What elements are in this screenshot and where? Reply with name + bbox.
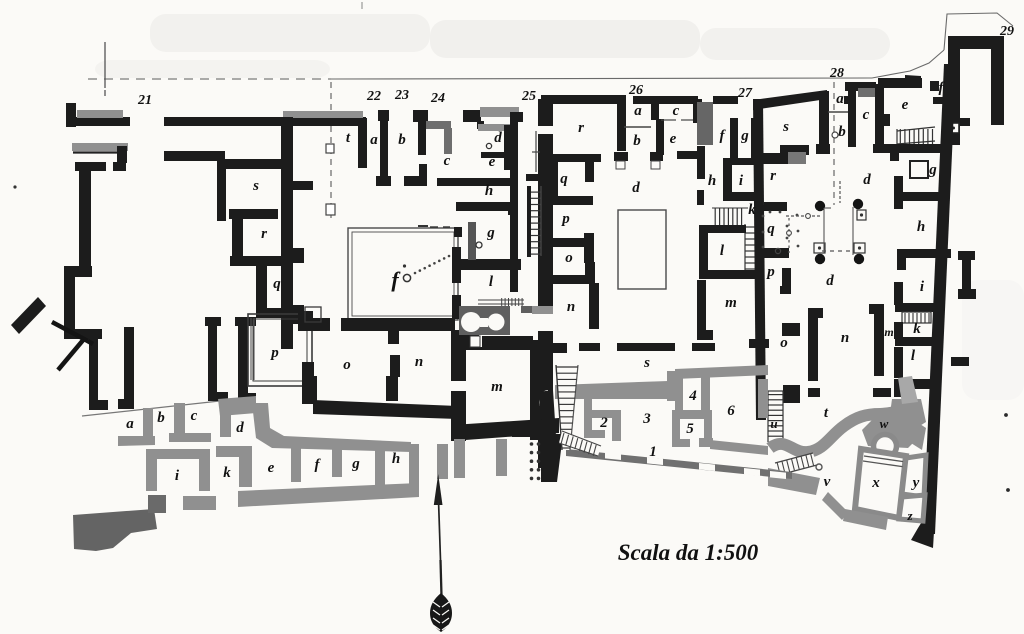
svg-text:c: c (444, 153, 451, 169)
svg-text:o: o (343, 357, 351, 373)
svg-text:q: q (767, 221, 775, 237)
svg-text:o: o (565, 250, 573, 266)
svg-text:e: e (268, 460, 275, 476)
svg-text:n: n (415, 354, 423, 370)
svg-text:29: 29 (999, 24, 1014, 39)
svg-text:5: 5 (686, 421, 694, 437)
svg-text:3: 3 (642, 411, 651, 427)
svg-text:w: w (880, 416, 889, 431)
svg-text:s: s (782, 119, 789, 135)
svg-text:g: g (486, 225, 495, 241)
svg-text:g: g (351, 456, 360, 472)
svg-text:y: y (911, 475, 920, 491)
svg-text:25: 25 (521, 89, 536, 104)
svg-text:a: a (634, 103, 642, 119)
svg-text:p: p (765, 264, 775, 280)
svg-text:p: p (269, 345, 279, 361)
svg-text:q: q (273, 276, 281, 292)
svg-text:b: b (838, 124, 846, 140)
svg-text:27: 27 (737, 86, 753, 101)
svg-text:e: e (902, 97, 909, 113)
svg-text:p: p (560, 211, 570, 227)
svg-text:c: c (863, 107, 870, 123)
svg-text:m: m (884, 325, 893, 339)
svg-text:x: x (871, 475, 880, 491)
svg-text:26: 26 (628, 83, 643, 98)
svg-text:m: m (725, 295, 737, 311)
svg-text:28: 28 (829, 66, 844, 81)
svg-text:k: k (748, 202, 756, 218)
svg-text:22: 22 (366, 89, 381, 104)
svg-text:v: v (824, 474, 831, 490)
svg-text:g: g (928, 162, 937, 178)
svg-text:r: r (578, 120, 584, 136)
svg-text:23: 23 (394, 88, 409, 103)
svg-text:b: b (157, 410, 165, 426)
svg-text:c: c (673, 103, 680, 119)
svg-text:k: k (223, 465, 231, 481)
svg-text:d: d (863, 172, 871, 188)
svg-text:2: 2 (599, 415, 608, 431)
svg-text:6: 6 (727, 403, 735, 419)
svg-text:b: b (633, 133, 641, 149)
svg-text:a: a (836, 91, 844, 107)
svg-text:s: s (643, 355, 650, 371)
svg-text:h: h (392, 451, 400, 467)
svg-text:4: 4 (688, 388, 697, 404)
svg-text:e: e (489, 154, 496, 170)
svg-text:a: a (370, 132, 378, 148)
svg-text:k: k (913, 321, 921, 337)
svg-text:z: z (906, 508, 913, 523)
svg-text:Scala da 1:500: Scala da 1:500 (618, 540, 759, 565)
svg-text:n: n (567, 299, 575, 315)
svg-text:m: m (491, 379, 503, 395)
svg-text:u: u (770, 416, 777, 431)
svg-text:s: s (252, 178, 259, 194)
svg-text:24: 24 (430, 91, 445, 106)
svg-text:a: a (126, 416, 134, 432)
svg-text:q: q (560, 171, 568, 187)
svg-text:r: r (261, 226, 267, 242)
svg-text:d: d (826, 273, 834, 289)
svg-text:n: n (841, 330, 849, 346)
svg-text:d: d (632, 180, 640, 196)
svg-text:e: e (670, 131, 677, 147)
svg-text:o: o (780, 335, 788, 351)
svg-text:g: g (740, 128, 749, 144)
svg-text:d: d (236, 420, 244, 436)
svg-text:b: b (398, 132, 406, 148)
svg-text:r: r (770, 168, 776, 184)
svg-text:21: 21 (137, 93, 152, 108)
svg-text:c: c (191, 408, 198, 424)
svg-text:h: h (917, 219, 925, 235)
svg-text:h: h (485, 183, 493, 199)
svg-text:1: 1 (649, 444, 657, 460)
svg-text:d: d (494, 130, 502, 146)
svg-text:h: h (708, 173, 716, 189)
